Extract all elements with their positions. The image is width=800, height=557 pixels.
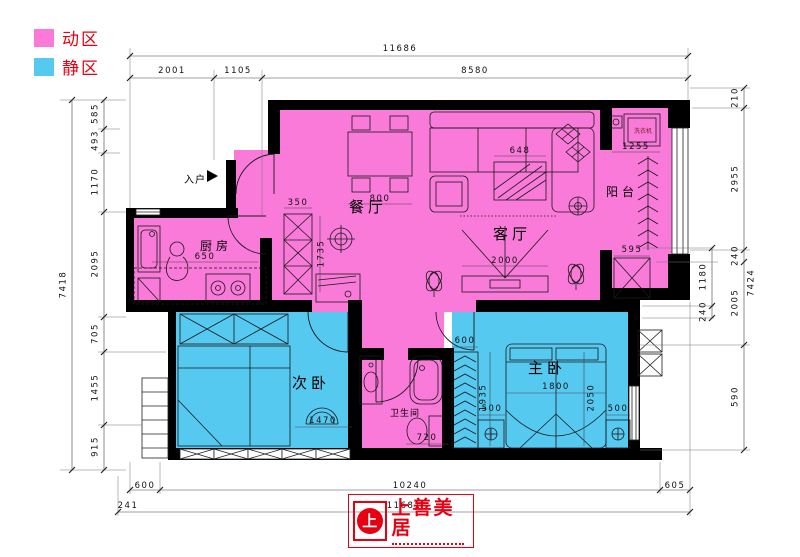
legend-quiet-swatch [34,58,54,76]
dim-bottom-seg3: 605 [645,481,705,492]
floorplan-drawing [0,0,800,557]
dim-right-outer4: 2005 [731,273,742,333]
dim-wardrobe-h: 1935 [479,368,490,428]
dim-left-total: 7418 [59,255,70,315]
brand-tagline-line [392,541,464,545]
dim-balcony-cabinet: 595 [617,245,647,256]
dim-bed2-seat: 1470 [303,416,343,427]
room-label-master: 主卧 [517,357,577,378]
dim-left-seg3: 1170 [91,152,102,212]
legend-active-swatch [34,29,54,47]
dim-bottom-seg2: 10240 [380,481,440,492]
room-label-balcony: 阳台 [592,183,652,200]
dim-right-total: 7424 [747,253,758,313]
dim-left-seg5: 705 [91,304,102,364]
legend-active: 动区 [34,25,100,50]
dim-washer: 1255 [616,142,656,153]
legend-quiet-label: 静区 [62,54,100,79]
room-label-bath: 卫生间 [375,406,435,419]
brand-emblem-mark: 上 [357,508,383,534]
dim-tv-wall: 2000 [485,256,525,267]
dim-hall-cabinet-h: 1735 [317,224,328,284]
legend-quiet: 静区 [34,54,100,79]
dim-top-seg1: 2001 [142,66,202,77]
floorplan-page: 动区 静区 11686 2001 1105 8580 7418 585 493 … [0,0,800,557]
dim-top-total: 11686 [370,44,430,55]
legend-active-label: 动区 [62,25,100,50]
dim-left-seg6: 1455 [91,358,102,418]
dim-coffee-table: 648 [505,146,535,157]
dim-toilet: 720 [412,433,442,444]
washer-label: 洗衣机 [627,126,659,135]
entry-arrow-icon [207,170,218,182]
brand-name: 上善美居 [392,498,469,538]
dim-master-bed-w: 1800 [536,382,576,393]
room-label-living: 客厅 [482,223,542,244]
dim-bottom-offset: 241 [98,501,158,512]
dim-wardrobe-w: 600 [450,336,480,347]
dim-right-outer5: 590 [731,367,742,427]
brand-emblem: 上 [353,501,387,541]
dim-right-outer1: 210 [731,68,742,128]
room-label-bedroom2: 次卧 [281,372,341,393]
dim-right-outer2: 2955 [731,149,742,209]
dim-master-bed-d: 2050 [587,368,598,428]
dim-hall-cabinet-w: 350 [283,198,313,209]
dim-right-inner2: 240 [699,282,710,342]
dim-left-seg7: 915 [91,417,102,477]
dim-nightstand-right: 500 [603,404,633,415]
dim-top-seg3: 8580 [445,66,505,77]
dim-left-seg4: 2095 [91,234,102,294]
room-label-kitchen: 厨房 [186,237,246,254]
dim-top-seg2: 1105 [208,66,268,77]
dim-bottom-seg1: 600 [115,481,175,492]
room-label-dining: 餐厅 [338,196,398,217]
brand-logo: 上 上善美居 [348,494,474,548]
